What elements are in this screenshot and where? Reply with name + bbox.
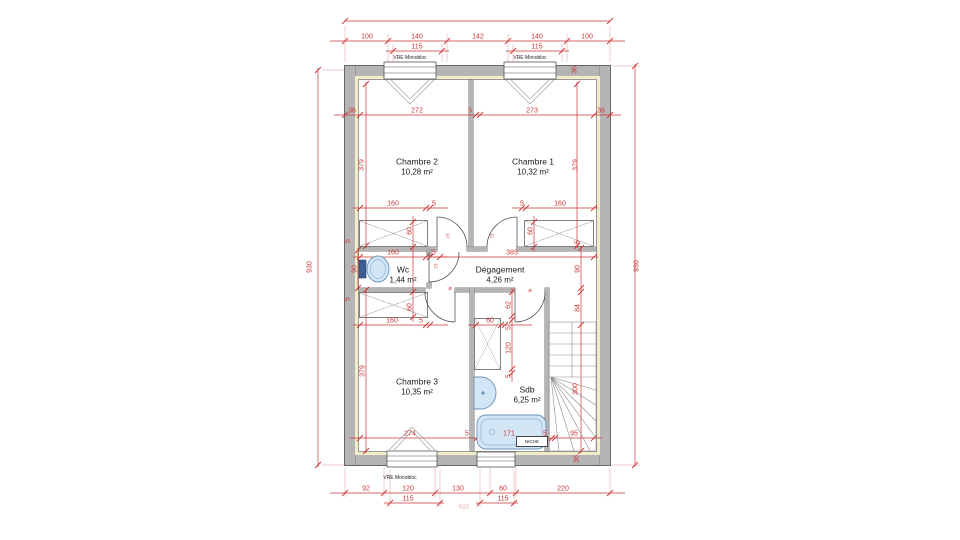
dimension-label: 930: [634, 260, 641, 272]
dimension-label: 60: [486, 318, 494, 325]
dimension-label: 140: [531, 34, 543, 41]
dimension-label: 84: [575, 304, 582, 312]
dimension-label: 5: [575, 240, 582, 244]
dimension-label: 115: [411, 44, 422, 51]
dimension-label: 115: [497, 496, 508, 503]
dimension-label: ø: [528, 288, 531, 294]
dimension-label: 5: [506, 374, 513, 378]
dimension-label: 100: [361, 34, 373, 41]
dimension-label: 272: [411, 108, 423, 115]
dimension-label: 930: [307, 261, 314, 273]
dimension-label: 120: [402, 486, 414, 493]
dimension-label: 73: [490, 233, 495, 238]
dimension-label: 36: [597, 108, 605, 115]
dimension-label: 73: [446, 233, 451, 238]
dimension-label: 62: [506, 301, 513, 309]
dimension-label: 36: [572, 66, 579, 74]
dimension-label: 5: [543, 431, 547, 438]
dimension-label: 379: [359, 159, 366, 171]
dimension-label: 5: [432, 250, 436, 257]
dimension-label: 90: [575, 265, 582, 273]
dimension-label: 160: [387, 201, 399, 208]
window-label: VRE Monobloc: [393, 55, 426, 61]
window-label: VRE Monobloc: [383, 475, 416, 481]
dimension-label: 160: [386, 318, 398, 325]
dimension-label: 142: [472, 34, 484, 41]
dimension-label: 90: [352, 265, 359, 273]
dimension-label: 36: [574, 455, 581, 463]
dimension-label: 5: [520, 201, 524, 208]
dimension-label: 5: [465, 431, 469, 438]
dimension-label: 95: [570, 431, 578, 438]
dimension-label: 5: [419, 318, 423, 325]
dimension-label: 273: [526, 108, 538, 115]
dimension-label: 60: [407, 227, 414, 235]
dimension-label: 5: [432, 201, 436, 208]
dimension-label: 115: [531, 44, 542, 51]
dimension-label: 5: [506, 326, 513, 330]
dimension-label: 385: [506, 250, 518, 257]
dimension-label: 140: [411, 34, 423, 41]
dimension-label: ø: [448, 286, 451, 292]
dimension-label: 379: [573, 159, 580, 171]
dimension-label: 73: [434, 263, 439, 268]
dimension-label: 300: [573, 383, 580, 395]
dimension-label: 171: [503, 431, 515, 438]
dimension-label: 5: [468, 108, 472, 115]
dimension-label: 120: [506, 342, 513, 354]
annotation-layer: 100140142140100115115VRE MonoblocVRE Mon…: [0, 0, 960, 540]
dimension-label: 92: [362, 486, 370, 493]
dimension-label: 379: [360, 365, 367, 377]
dimension-label: 115: [402, 496, 413, 503]
dimension-label: 5: [345, 239, 352, 243]
dimension-label: 5: [345, 297, 352, 301]
dimension-label: 274: [404, 431, 416, 438]
dimension-label: 160: [554, 201, 566, 208]
window-label: VRE Monobloc: [513, 55, 546, 61]
dimension-label: 60: [499, 486, 507, 493]
floor-plan-canvas: Chambre 2 10,28 m² Chambre 1 10,32 m² Wc…: [0, 0, 960, 540]
dimension-label: 60: [407, 303, 414, 311]
dimension-label: 160: [387, 250, 399, 257]
dimension-label: 130: [452, 486, 464, 493]
dimension-label: 60: [528, 227, 535, 235]
dimension-label: 220: [557, 486, 569, 493]
dimension-label: 36: [348, 108, 356, 115]
dimension-label: 622: [459, 504, 470, 511]
dimension-label: 100: [581, 34, 593, 41]
